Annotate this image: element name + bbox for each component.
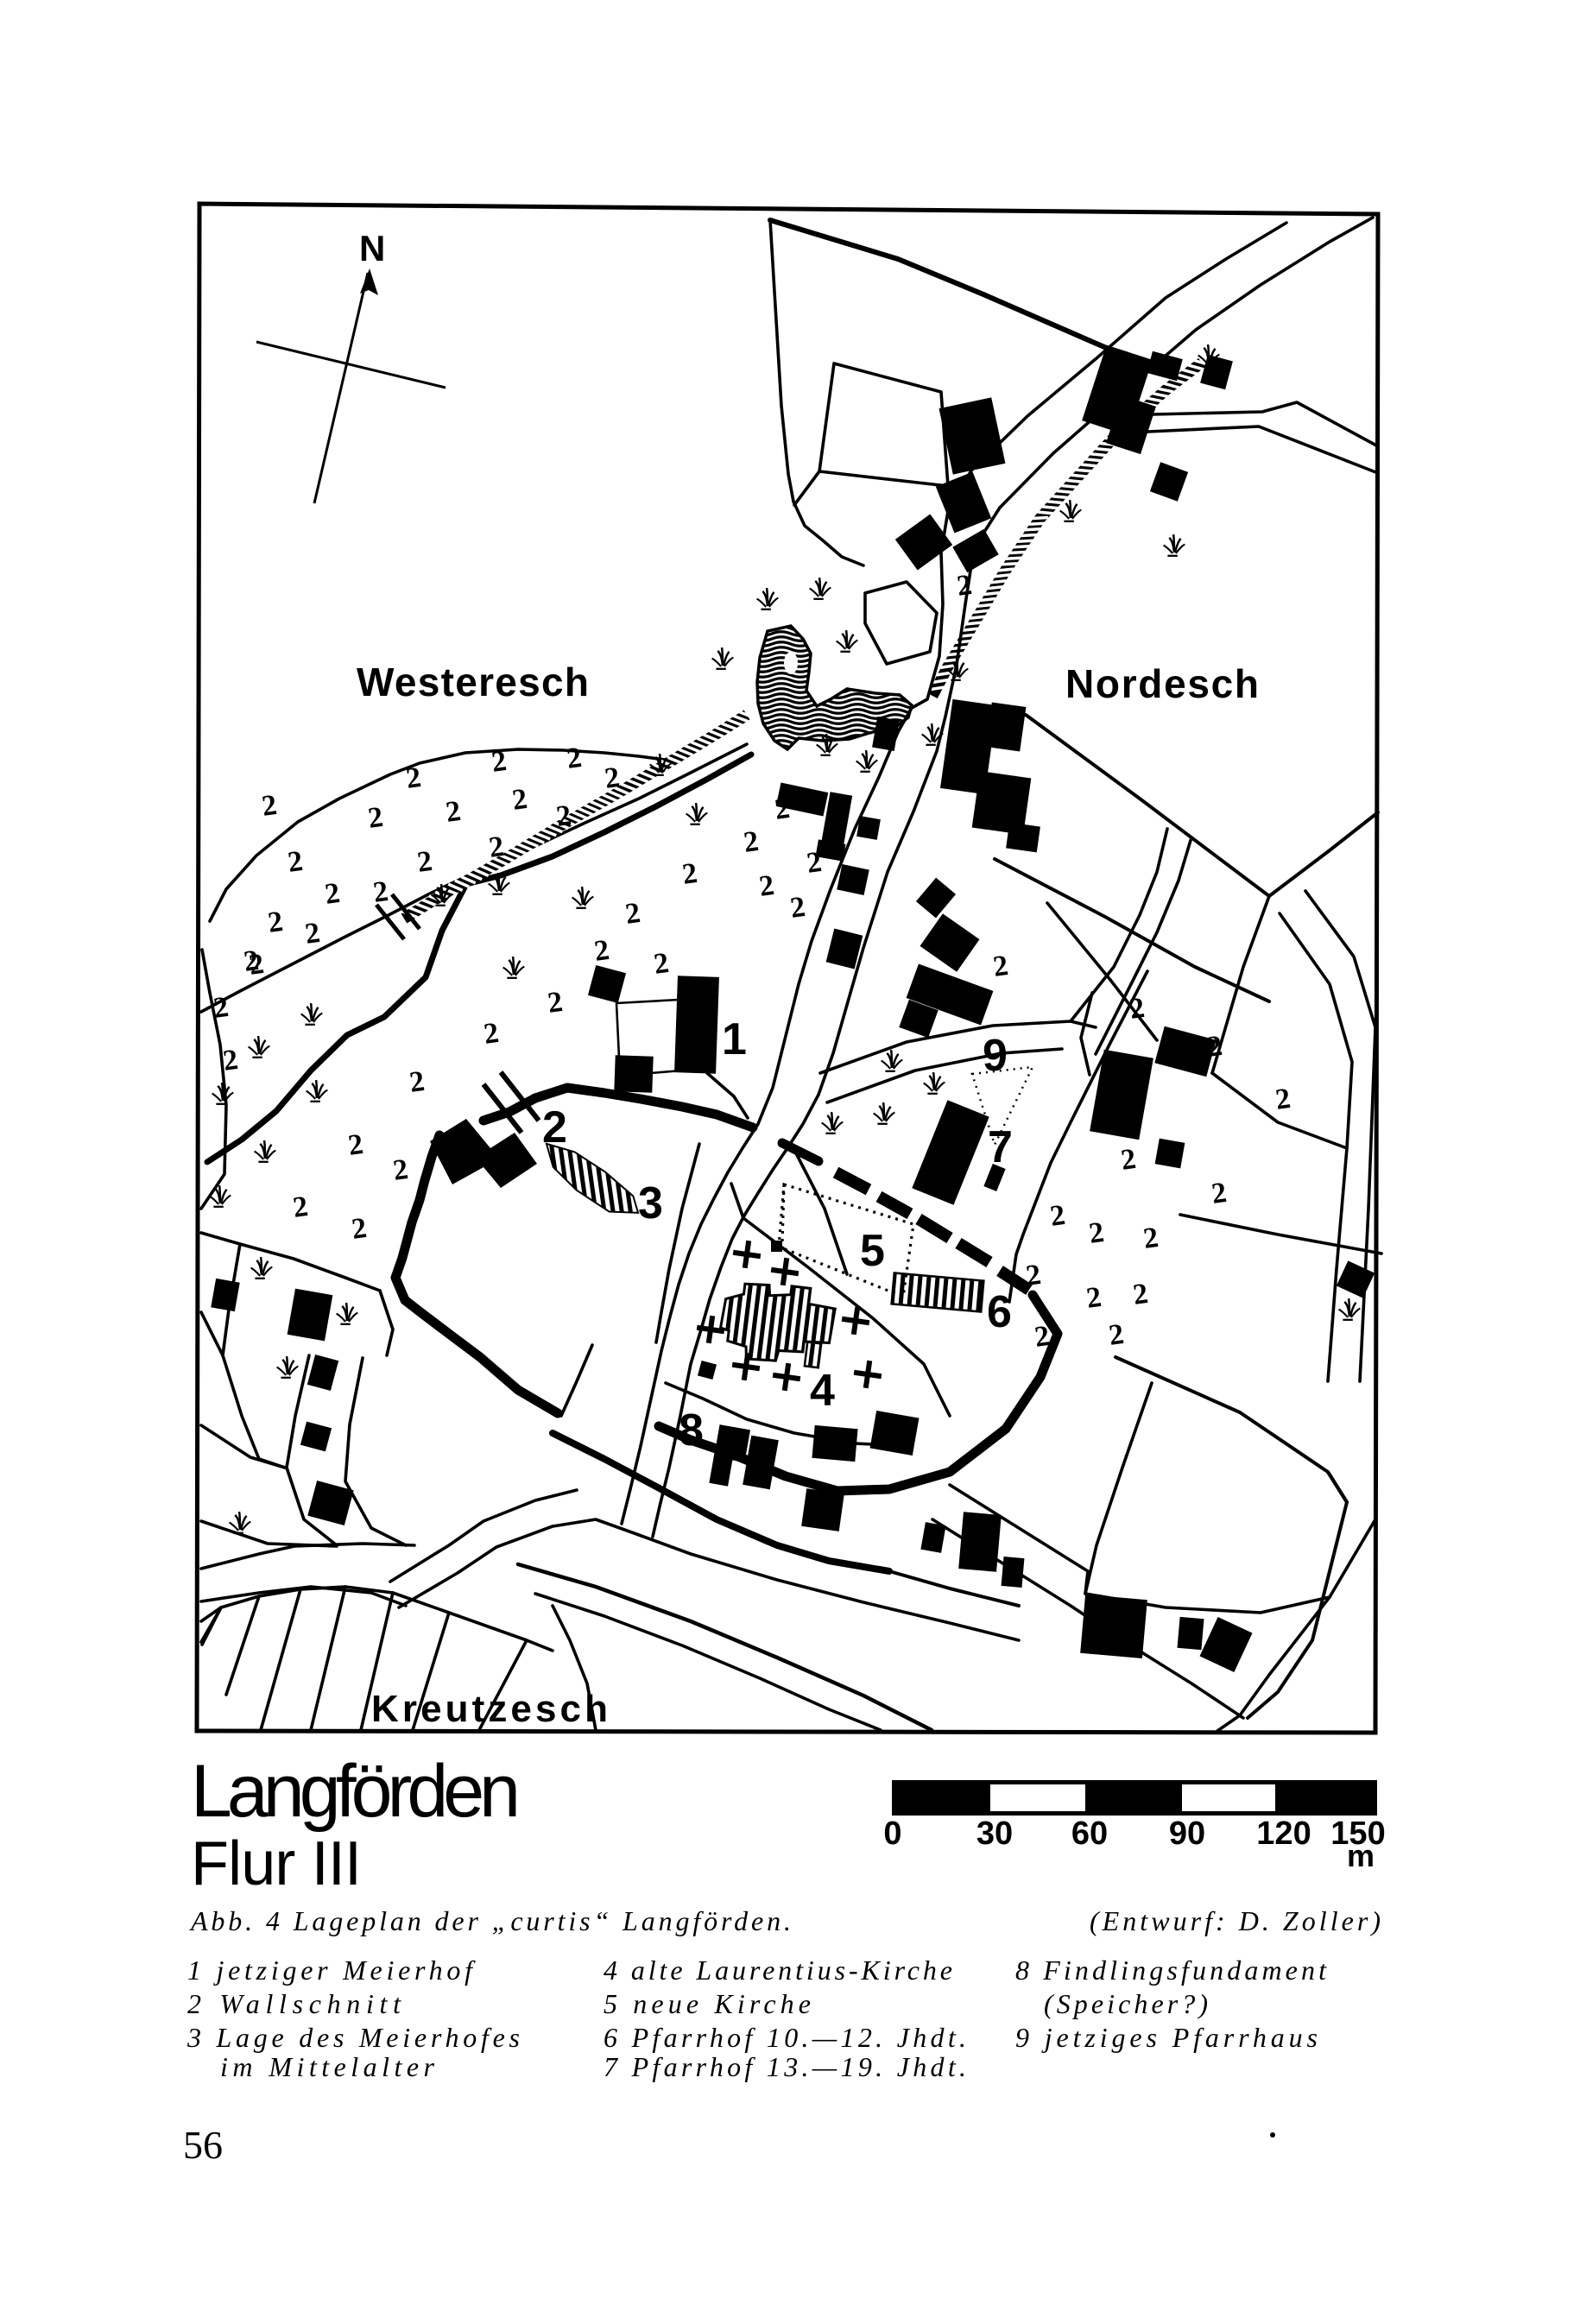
- svg-text:6: 6: [987, 1287, 1012, 1337]
- svg-text:2: 2: [757, 869, 776, 903]
- svg-text:2: 2: [991, 950, 1010, 983]
- svg-text:(Speicher?): (Speicher?): [1044, 1988, 1208, 2019]
- svg-text:120: 120: [1256, 1816, 1311, 1852]
- svg-text:Kreutzesch: Kreutzesch: [371, 1688, 610, 1730]
- svg-text:Westeresch: Westeresch: [357, 660, 591, 704]
- svg-text:2: 2: [652, 947, 671, 981]
- svg-text:Flur III: Flur III: [191, 1829, 362, 1898]
- svg-text:60: 60: [1071, 1816, 1108, 1852]
- svg-text:2: 2: [1084, 1281, 1103, 1315]
- svg-text:2: 2: [408, 1065, 427, 1099]
- svg-text:8: 8: [679, 1405, 704, 1456]
- svg-text:2: 2: [415, 845, 434, 879]
- svg-text:6 Pfarrhof 10.—12. Jhdt.: 6 Pfarrhof 10.—12. Jhdt.: [604, 2022, 966, 2053]
- svg-text:8 Findlingsfundament: 8 Findlingsfundament: [1015, 1955, 1327, 1986]
- svg-text:(Entwurf: D. Zoller): (Entwurf: D. Zoller): [1090, 1905, 1381, 1936]
- svg-text:5: 5: [860, 1226, 885, 1276]
- svg-text:2: 2: [788, 891, 807, 925]
- svg-text:7 Pfarrhof 13.—19. Jhdt.: 7 Pfarrhof 13.—19. Jhdt.: [604, 2051, 966, 2082]
- svg-text:2: 2: [350, 1212, 369, 1246]
- svg-text:2: 2: [266, 906, 285, 939]
- svg-text:2: 2: [542, 1102, 567, 1153]
- svg-text:m: m: [1347, 1838, 1375, 1873]
- svg-text:2: 2: [592, 934, 611, 968]
- svg-text:2: 2: [444, 795, 463, 829]
- svg-text:2: 2: [487, 830, 506, 864]
- svg-text:5 neue Kirche: 5 neue Kirche: [604, 1988, 811, 2019]
- svg-text:2: 2: [565, 742, 584, 775]
- svg-text:2: 2: [1273, 1083, 1292, 1116]
- svg-text:2: 2: [1210, 1177, 1229, 1210]
- svg-text:N: N: [359, 228, 385, 268]
- svg-text:2 Wallschnitt: 2 Wallschnitt: [187, 1988, 401, 2019]
- svg-text:2: 2: [391, 1153, 410, 1187]
- svg-text:2: 2: [1128, 992, 1147, 1026]
- svg-text:2: 2: [482, 1017, 501, 1051]
- svg-text:2: 2: [546, 986, 565, 1020]
- svg-text:Nordesch: Nordesch: [1065, 661, 1261, 706]
- svg-text:2: 2: [404, 761, 423, 795]
- svg-text:7: 7: [988, 1122, 1013, 1172]
- svg-text:2: 2: [1131, 1278, 1150, 1311]
- svg-text:2: 2: [510, 783, 529, 817]
- svg-text:2: 2: [1119, 1143, 1138, 1177]
- svg-text:0: 0: [883, 1816, 901, 1852]
- svg-text:Langförden: Langförden: [191, 1750, 521, 1833]
- svg-text:90: 90: [1169, 1816, 1205, 1852]
- svg-text:4: 4: [810, 1366, 835, 1416]
- svg-text:3: 3: [638, 1178, 663, 1228]
- svg-text:9 jetziges Pfarrhaus: 9 jetziges Pfarrhaus: [1015, 2022, 1318, 2053]
- svg-text:2: 2: [680, 857, 699, 891]
- svg-text:2: 2: [1087, 1216, 1106, 1250]
- svg-text:3 Lage des Meierhofes: 3 Lage des Meierhofes: [186, 2022, 520, 2053]
- svg-text:9: 9: [983, 1031, 1008, 1081]
- svg-text:2: 2: [742, 825, 761, 859]
- svg-text:2: 2: [323, 877, 342, 911]
- svg-text:4 alte Laurentius-Kirche: 4 alte Laurentius-Kirche: [604, 1955, 952, 1986]
- svg-text:2: 2: [623, 897, 642, 931]
- svg-text:2: 2: [260, 789, 279, 823]
- svg-text:im Mittelalter: im Mittelalter: [220, 2051, 435, 2082]
- svg-text:2: 2: [286, 845, 305, 879]
- svg-text:2: 2: [1107, 1318, 1126, 1352]
- svg-text:2: 2: [1048, 1199, 1067, 1233]
- svg-text:2: 2: [346, 1128, 365, 1162]
- svg-text:2: 2: [303, 917, 322, 950]
- svg-text:2: 2: [603, 761, 622, 795]
- svg-text:1: 1: [722, 1014, 747, 1064]
- svg-text:2: 2: [366, 801, 385, 835]
- svg-text:30: 30: [976, 1816, 1013, 1852]
- svg-text:2: 2: [291, 1190, 310, 1224]
- svg-text:2: 2: [371, 875, 390, 909]
- svg-text:1 jetziger Meierhof: 1 jetziger Meierhof: [187, 1955, 476, 1986]
- svg-text:Abb. 4 Lageplan der „curt: Abb. 4 Lageplan der „curtis“ Langförden.: [189, 1905, 791, 1936]
- svg-text:56: 56: [183, 2123, 223, 2167]
- svg-text:2: 2: [1141, 1222, 1160, 1255]
